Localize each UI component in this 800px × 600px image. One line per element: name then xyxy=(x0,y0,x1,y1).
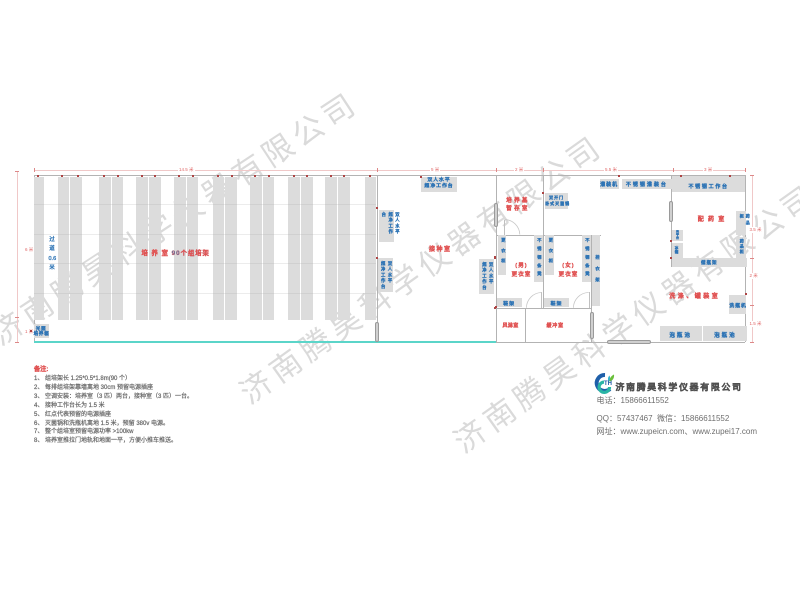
svg-text:TH: TH xyxy=(604,381,612,387)
